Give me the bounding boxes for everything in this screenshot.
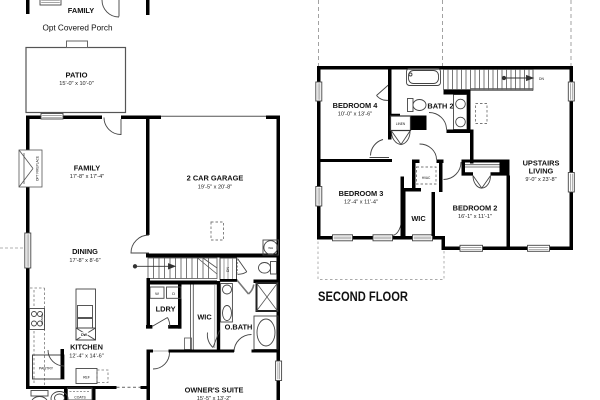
svg-text:WIC: WIC <box>411 214 426 223</box>
svg-text:BEDROOM 2: BEDROOM 2 <box>453 204 498 213</box>
svg-text:DW: DW <box>81 333 87 337</box>
svg-text:FAMILY: FAMILY <box>68 6 94 15</box>
svg-text:BATH 2: BATH 2 <box>427 102 453 111</box>
svg-text:RANGE: RANGE <box>40 314 44 325</box>
svg-text:DN: DN <box>226 267 230 272</box>
svg-text:SECOND FLOOR: SECOND FLOOR <box>318 289 408 304</box>
svg-text:KITCHEN: KITCHEN <box>70 343 103 352</box>
svg-text:9'-0" x 23'-8": 9'-0" x 23'-8" <box>525 177 556 183</box>
svg-text:15'-0" x 10'-0": 15'-0" x 10'-0" <box>59 81 93 87</box>
svg-text:Opt Covered Porch: Opt Covered Porch <box>42 24 113 33</box>
svg-text:BEDROOM 4: BEDROOM 4 <box>333 101 379 110</box>
svg-text:BEDROOM 3: BEDROOM 3 <box>339 189 384 198</box>
svg-text:DN: DN <box>539 77 544 81</box>
svg-text:DINING: DINING <box>72 247 98 256</box>
svg-text:FAMILY: FAMILY <box>74 164 100 173</box>
svg-text:12'-4" x 11'-4": 12'-4" x 11'-4" <box>344 200 378 206</box>
svg-text:D: D <box>172 291 175 296</box>
svg-text:REF: REF <box>83 376 90 380</box>
svg-text:17'-8" x 8'-6": 17'-8" x 8'-6" <box>69 258 100 264</box>
svg-text:16'-1" x 11'-1": 16'-1" x 11'-1" <box>458 214 492 220</box>
svg-text:15'-5" x 13'-2": 15'-5" x 13'-2" <box>197 396 231 400</box>
svg-text:LIVING: LIVING <box>529 167 554 176</box>
svg-text:10'-0" x 13'-6": 10'-0" x 13'-6" <box>338 112 372 118</box>
svg-text:PATIO: PATIO <box>66 71 88 80</box>
svg-text:LINEN: LINEN <box>396 122 406 126</box>
svg-text:W: W <box>155 291 159 296</box>
svg-text:O.BATH: O.BATH <box>225 322 253 331</box>
svg-text:WIC: WIC <box>197 313 212 322</box>
svg-text:19'-5" x 20'-8": 19'-5" x 20'-8" <box>198 185 232 191</box>
svg-text:12'-4" x 14'-6": 12'-4" x 14'-6" <box>69 354 103 360</box>
svg-text:PANTRY: PANTRY <box>39 367 54 371</box>
svg-text:OWNER'S SUITE: OWNER'S SUITE <box>185 386 244 395</box>
svg-text:17'-8" x 17'-4": 17'-8" x 17'-4" <box>70 174 104 180</box>
svg-text:2 CAR GARAGE: 2 CAR GARAGE <box>187 174 244 183</box>
svg-text:COATS: COATS <box>74 396 86 400</box>
svg-text:LDRY: LDRY <box>156 304 176 313</box>
svg-text:OPT FIREPLACE: OPT FIREPLACE <box>36 156 40 181</box>
svg-text:WH: WH <box>268 246 273 250</box>
svg-text:HVAC: HVAC <box>422 176 431 180</box>
